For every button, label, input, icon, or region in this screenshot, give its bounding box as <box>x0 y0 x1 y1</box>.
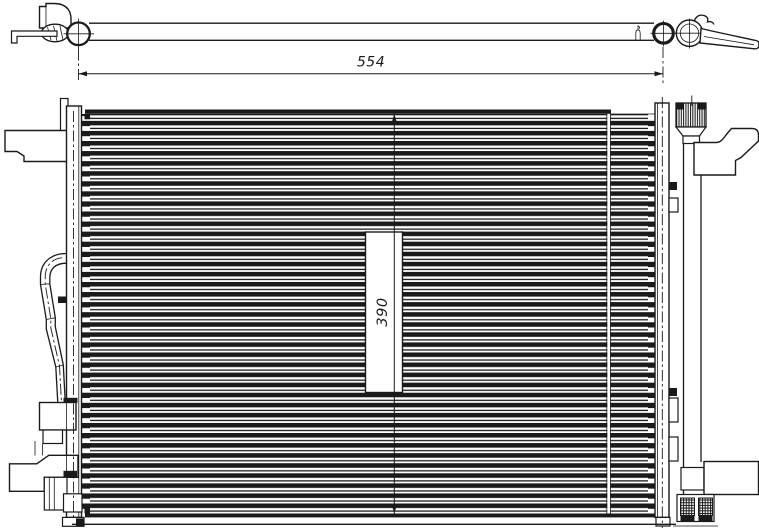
tank-drier-tab-black-1 <box>669 182 677 190</box>
pipe-lower-stub <box>35 441 43 456</box>
dim554-arrow-right <box>655 71 664 76</box>
drier-funnel <box>676 127 706 136</box>
core-corner-gusset-bl <box>85 508 91 514</box>
dim390-label: 390 <box>375 297 391 326</box>
bracket-bottom-right-link <box>681 468 704 491</box>
drier-bottom-cap-pad-left <box>681 516 695 522</box>
pipe-outer-edge <box>41 254 67 404</box>
tank-drier-tab-1 <box>669 198 678 212</box>
left-pipe <box>41 254 67 404</box>
top-right-fitting <box>651 15 759 49</box>
tank-drier-tab-2 <box>669 398 678 422</box>
pipe-clamp-tab <box>58 297 67 304</box>
bracket-top-right-flag <box>694 129 759 176</box>
drawing-canvas: 554 <box>0 0 759 530</box>
condenser-technical-drawing: 554 <box>0 0 759 530</box>
right-tank <box>655 103 678 526</box>
drier-bottom-cap-grid-left <box>681 498 695 516</box>
core-bottom-plate <box>85 514 656 518</box>
dimension-554: 554 <box>79 47 664 83</box>
drier-bottom-cap-pad-right <box>699 516 713 522</box>
bracket-mid-left-body <box>40 403 77 431</box>
bracket-mid-left-step <box>43 430 63 444</box>
core-corner-gusset-tl <box>85 114 91 120</box>
drier-cap-block-right <box>698 103 706 110</box>
drier-tube-edges <box>684 144 702 495</box>
fin-edge-left <box>82 114 91 514</box>
dim554-arrow-left <box>79 71 88 76</box>
right-port-crosshair <box>651 21 678 47</box>
bracket-bottom-left-tab <box>64 471 78 477</box>
pipe-centerline <box>45 258 62 403</box>
bar-pin <box>636 26 640 41</box>
receiver-drier <box>673 96 759 527</box>
tank-drier-tab-black-2 <box>669 388 677 396</box>
bracket-top-left <box>5 131 67 162</box>
core-seam-gap <box>607 114 610 514</box>
drier-bottom-cap-grid-right <box>699 498 713 516</box>
right-bracket-arm <box>700 29 759 49</box>
dim554-label: 554 <box>357 55 385 71</box>
left-tank-foot-pad <box>76 518 84 526</box>
top-view <box>12 4 759 50</box>
bracket-mid-left-tab <box>64 398 78 403</box>
bracket-bottom-left-foot-block <box>64 494 83 512</box>
drier-cap-block-left <box>676 103 684 110</box>
top-left-fitting <box>12 4 95 50</box>
core-top-plate <box>85 110 611 114</box>
bracket-bottom-right-body <box>704 462 759 495</box>
tank-drier-tab-3 <box>669 437 678 461</box>
